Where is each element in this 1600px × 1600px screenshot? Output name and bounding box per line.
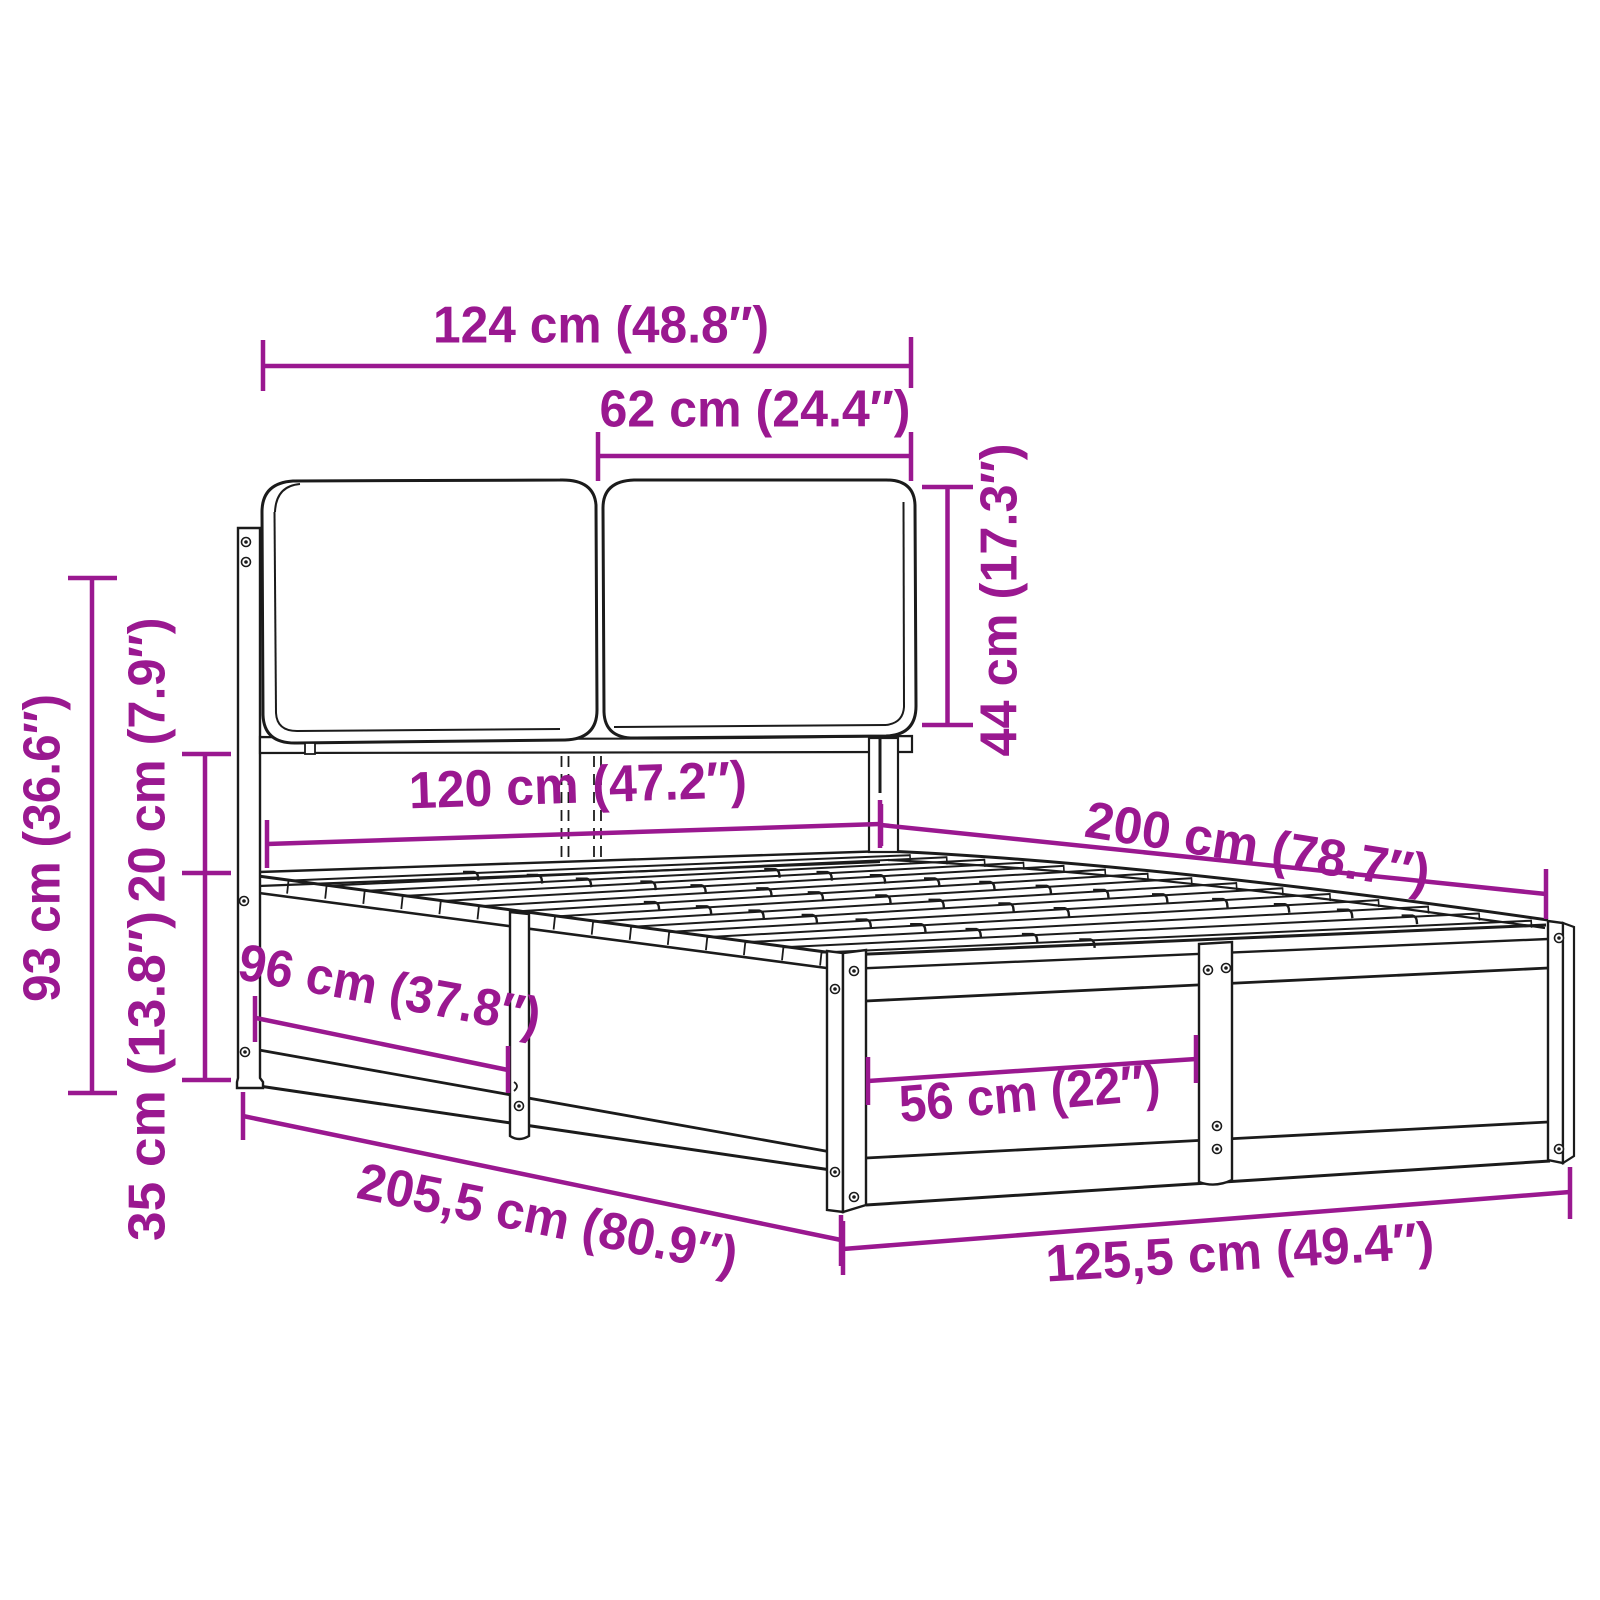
svg-text:20 cm (7.9″): 20 cm (7.9″) xyxy=(119,618,177,903)
svg-text:44 cm (17.3″): 44 cm (17.3″) xyxy=(971,444,1029,757)
svg-text:62 cm (24.4″): 62 cm (24.4″) xyxy=(600,381,911,439)
svg-text:124 cm (48.8″): 124 cm (48.8″) xyxy=(433,297,769,355)
svg-text:35 cm (13.8″): 35 cm (13.8″) xyxy=(119,911,177,1241)
svg-text:120 cm (47.2″): 120 cm (47.2″) xyxy=(408,751,748,820)
svg-text:93 cm (36.6″): 93 cm (36.6″) xyxy=(14,694,72,1002)
